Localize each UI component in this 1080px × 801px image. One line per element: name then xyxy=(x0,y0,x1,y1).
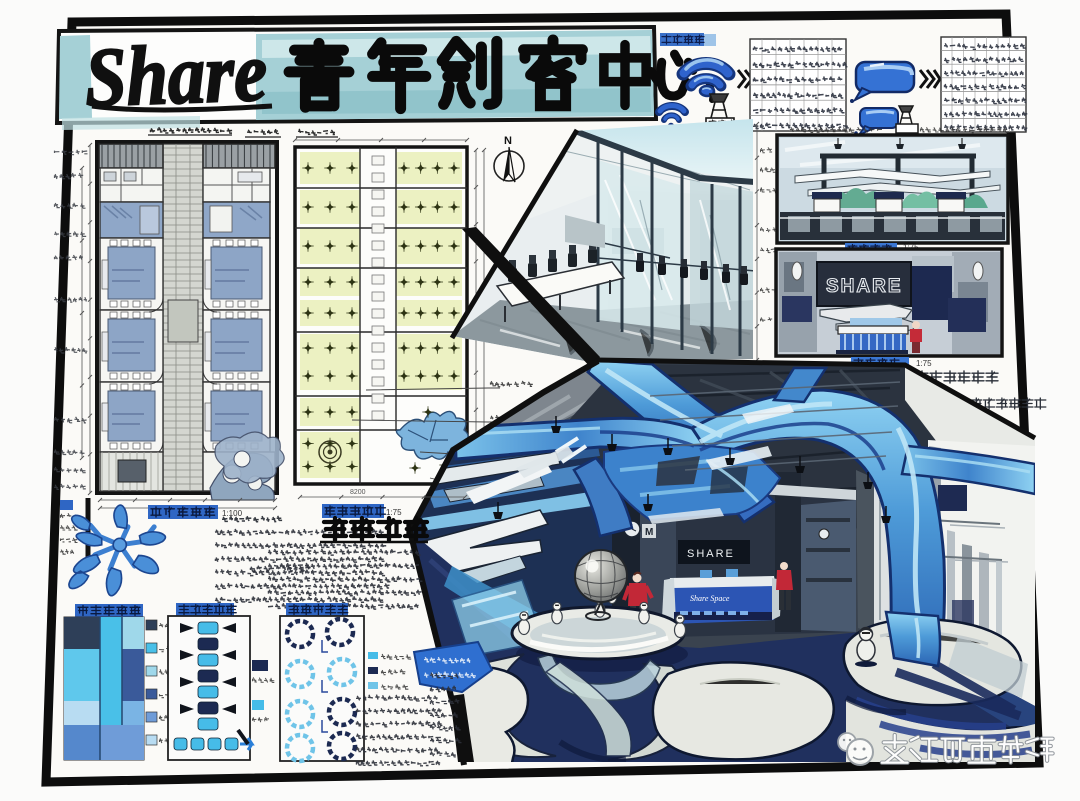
svg-text:SHARE: SHARE xyxy=(687,548,735,560)
svg-text:8200: 8200 xyxy=(350,489,366,496)
svg-text:M: M xyxy=(645,527,653,538)
svg-text:SHARE: SHARE xyxy=(826,276,903,297)
svg-text:N: N xyxy=(504,135,512,147)
svg-text:1:75: 1:75 xyxy=(386,508,402,517)
svg-text:1:75: 1:75 xyxy=(916,359,932,368)
svg-text:Share Space: Share Space xyxy=(690,594,730,603)
svg-text:1:100: 1:100 xyxy=(222,509,243,518)
